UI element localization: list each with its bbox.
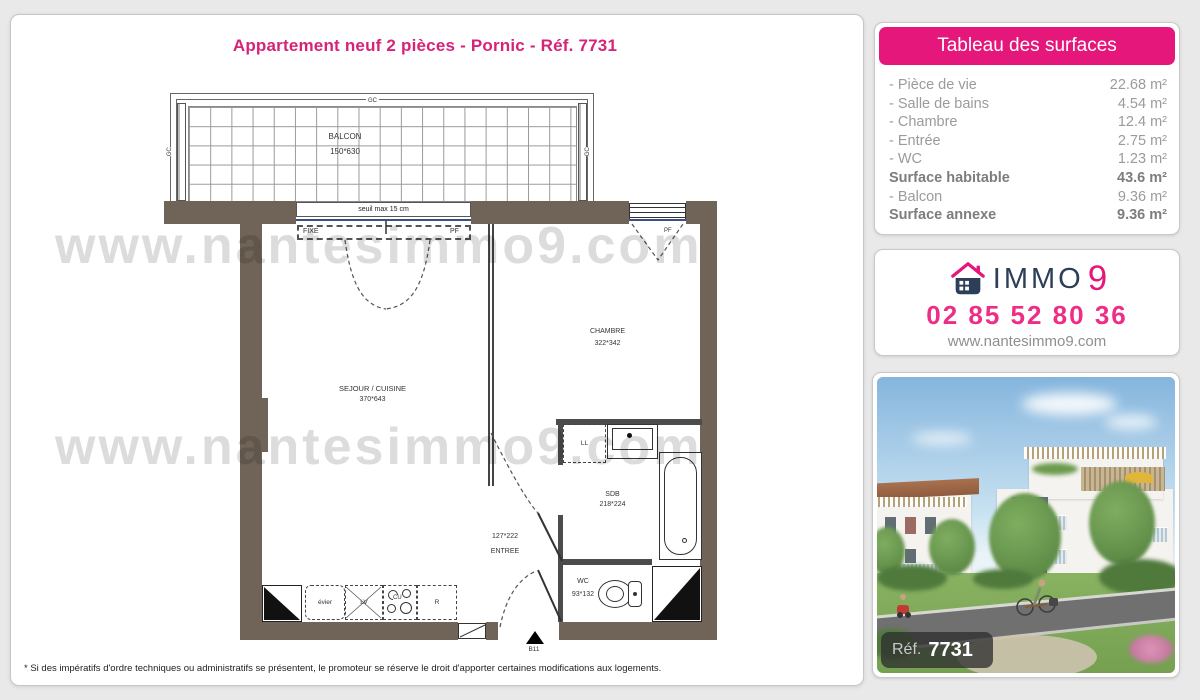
window-fixed-label: FIXE — [303, 228, 319, 237]
window-glass — [629, 219, 686, 221]
bathroom-dim: 218*224 — [590, 501, 635, 510]
surface-row-value: 2.75 m² — [1118, 132, 1167, 151]
house-icon — [947, 260, 989, 298]
surface-row: - Entrée2.75 m² — [889, 132, 1167, 151]
property-photo: Réf. 7731 — [877, 377, 1175, 673]
wc-label: WC — [568, 578, 598, 587]
property-photo-card: Réf. 7731 — [872, 372, 1180, 678]
wc-wall — [558, 565, 563, 622]
window-glass — [296, 219, 471, 221]
surface-row-label: - Salle de bains — [889, 95, 989, 114]
surface-total-row: Surface annexe9.36 m² — [889, 206, 1167, 225]
fridge: R — [417, 585, 457, 620]
surface-total-row: Surface habitable43.6 m² — [889, 169, 1167, 188]
brand-number: 9 — [1088, 259, 1107, 299]
surface-row-value: 9.36 m² — [1117, 206, 1167, 225]
surface-row: - Salle de bains4.54 m² — [889, 95, 1167, 114]
page: Appartement neuf 2 pièces - Pornic - Réf… — [0, 0, 1200, 700]
balcony-dim-label: 150*630 — [300, 147, 390, 157]
dishwasher-label: LV — [359, 599, 368, 606]
surface-row-value: 43.6 m² — [1117, 169, 1167, 188]
surface-rows: - Pièce de vie22.68 m² - Salle de bains4… — [875, 69, 1179, 225]
bedroom-window-label: PF — [664, 228, 672, 236]
window-fixed-pf-band — [297, 225, 471, 240]
wc-wall — [558, 559, 652, 565]
bathroom-sink-basin — [612, 428, 653, 450]
wall-pilaster — [240, 398, 268, 452]
disclaimer-footnote: * Si des impératifs d'ordre techniques o… — [24, 663, 661, 674]
surface-row-value: 1.23 m² — [1118, 150, 1167, 169]
balcony-name-label: BALCON — [300, 132, 390, 142]
surface-row-label: - WC — [889, 150, 922, 169]
wall-segment — [240, 622, 458, 640]
burner — [400, 602, 412, 614]
washer-label: LL — [581, 440, 588, 447]
agency-logo: IMMO 9 — [875, 259, 1179, 299]
partition-wall — [488, 224, 494, 486]
kitchen-sink: évier — [305, 585, 345, 620]
fridge-label: R — [435, 599, 440, 606]
cooktop-label: CU — [393, 595, 402, 603]
unit-ref-label: B11 — [524, 646, 544, 654]
burner — [402, 589, 411, 598]
page-title: Appartement neuf 2 pièces - Pornic - Réf… — [130, 36, 720, 56]
surface-row: - WC1.23 m² — [889, 150, 1167, 169]
surface-row: - Pièce de vie22.68 m² — [889, 76, 1167, 95]
window-pf-label: PF — [450, 228, 459, 237]
wall-segment — [559, 622, 717, 640]
website-url: www.nantesimmo9.com — [875, 333, 1179, 350]
wall-segment — [700, 202, 717, 640]
kitchen-window — [458, 623, 486, 639]
surface-row-label: - Pièce de vie — [889, 76, 977, 95]
surface-row-value: 22.68 m² — [1110, 76, 1167, 95]
dishwasher: LV — [345, 585, 383, 620]
toilet-bowl-inner — [606, 586, 624, 602]
entry-dim: 127*222 — [480, 533, 530, 542]
kitchen-sink-label: évier — [318, 599, 332, 606]
threshold-note-band: seuil max 15 cm — [296, 202, 471, 217]
surface-row-value: 4.54 m² — [1118, 95, 1167, 114]
surface-row-label: Surface habitable — [889, 169, 1010, 188]
balcony-rail-label-top: GC — [366, 98, 379, 106]
cooktop — [383, 585, 417, 620]
surface-row-value: 12.4 m² — [1118, 113, 1167, 132]
agency-card: IMMO 9 02 85 52 80 36 www.nantesimmo9.co… — [874, 249, 1180, 356]
ref-value: 7731 — [928, 639, 973, 662]
phone-number: 02 85 52 80 36 — [875, 300, 1179, 331]
photo-ref-badge: Réf. 7731 — [881, 632, 993, 668]
technical-shaft — [262, 585, 302, 622]
entry-label: ENTREE — [480, 548, 530, 557]
surface-row-value: 9.36 m² — [1118, 188, 1167, 207]
balcony-left-glass — [177, 103, 186, 201]
technical-shaft — [652, 566, 702, 622]
bathtub-drain — [682, 538, 687, 543]
brand-name: IMMO — [993, 263, 1084, 296]
surface-row-label: Surface annexe — [889, 206, 996, 225]
surface-row: - Chambre12.4 m² — [889, 113, 1167, 132]
surface-row-label: - Chambre — [889, 113, 958, 132]
washing-machine: LL — [563, 424, 606, 463]
faucet-dot — [627, 433, 632, 438]
entry-wall — [558, 515, 563, 561]
bedroom-dim: 322*342 — [570, 340, 645, 349]
surface-row-label: - Balcon — [889, 188, 942, 207]
bathtub-inner — [664, 457, 697, 555]
wall-segment — [471, 201, 629, 224]
wall-segment — [486, 622, 498, 640]
ref-label: Réf. — [892, 641, 921, 659]
toilet-button — [633, 592, 637, 596]
living-room-label: SEJOUR / CUISINE — [300, 384, 445, 393]
wc-dim: 93*132 — [568, 591, 598, 600]
photo-flowers — [1129, 635, 1173, 663]
surface-table-header: Tableau des surfaces — [879, 27, 1175, 65]
wall-segment — [164, 201, 296, 224]
entrance-arrow — [526, 631, 544, 644]
burner — [387, 604, 396, 613]
bedroom-window — [629, 203, 686, 220]
surface-row: - Balcon9.36 m² — [889, 188, 1167, 207]
photo-road-layer — [877, 377, 1175, 673]
surface-table-card: Tableau des surfaces - Pièce de vie22.68… — [874, 22, 1180, 235]
balcony-rail-label-left: GC — [167, 147, 175, 156]
bedroom-label: CHAMBRE — [570, 328, 645, 337]
surface-row-label: - Entrée — [889, 132, 941, 151]
bathroom-label: SDB — [590, 491, 635, 500]
balcony-rail-label-right: GC — [585, 147, 593, 156]
living-room-dim: 370*643 — [300, 396, 445, 405]
